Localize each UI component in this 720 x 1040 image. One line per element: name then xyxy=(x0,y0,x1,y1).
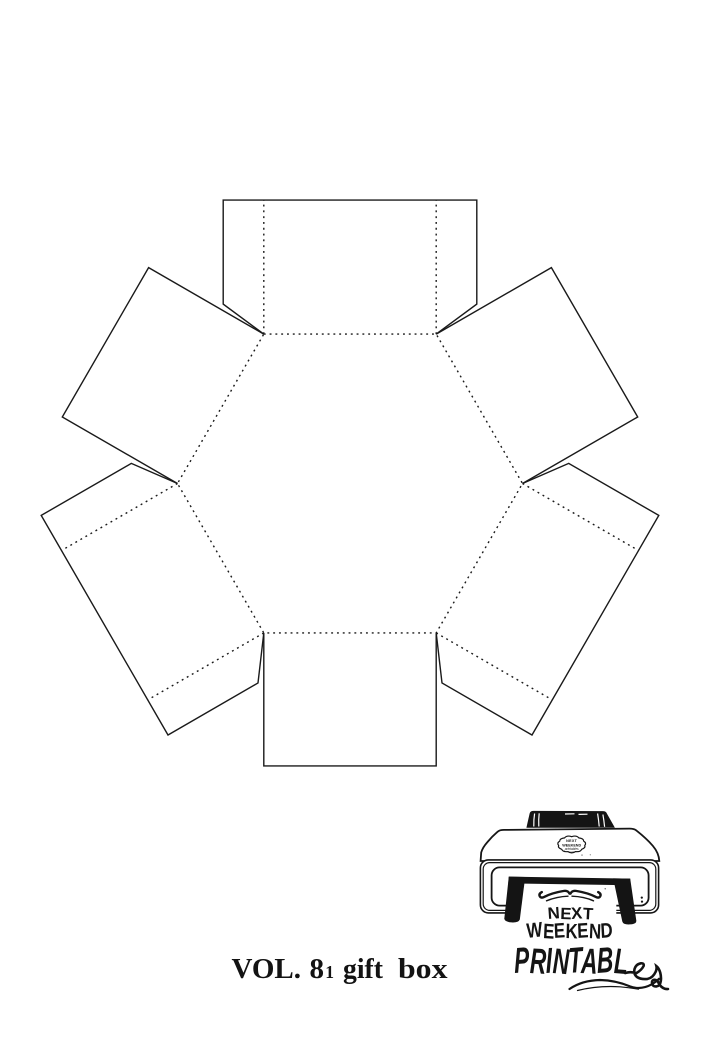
svg-text:gift: gift xyxy=(343,953,383,985)
svg-text:VOL.: VOL. xyxy=(232,953,302,985)
svg-text:1: 1 xyxy=(325,962,334,982)
svg-text:printables: printables xyxy=(564,847,579,851)
svg-text:8: 8 xyxy=(310,953,325,985)
svg-text:box: box xyxy=(398,953,448,985)
